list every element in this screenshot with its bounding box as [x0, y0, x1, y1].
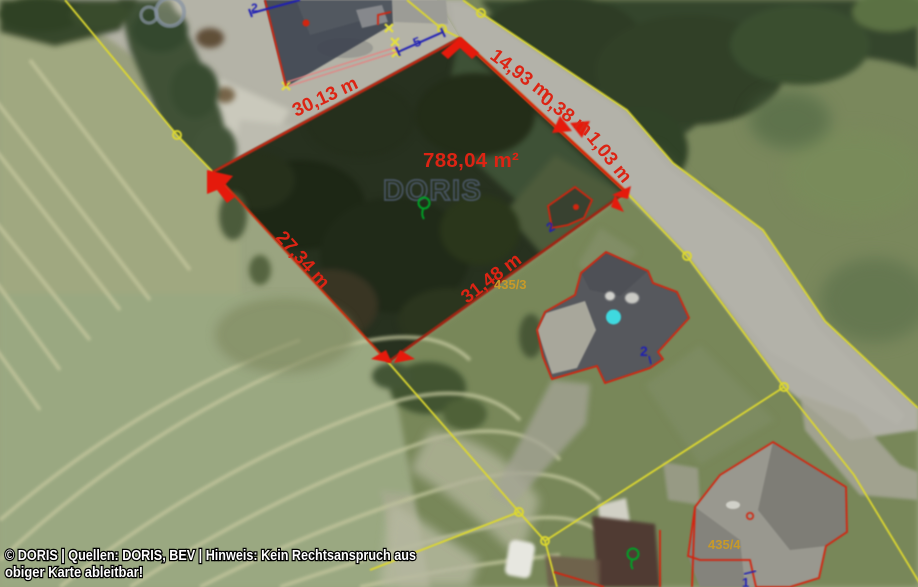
svg-text:DORIS: DORIS — [383, 175, 482, 207]
svg-text:2: 2 — [640, 343, 648, 359]
svg-text:435/4: 435/4 — [708, 537, 741, 552]
svg-text:1: 1 — [742, 575, 749, 587]
svg-text:2: 2 — [251, 1, 258, 15]
svg-text:788,04 m²: 788,04 m² — [423, 149, 519, 172]
svg-text:© DORIS | Quellen: DORIS, BEV: © DORIS | Quellen: DORIS, BEV | Hinweis:… — [5, 548, 416, 564]
svg-text:435/3: 435/3 — [494, 277, 527, 292]
svg-text:obiger Karte ableitbar!: obiger Karte ableitbar! — [5, 565, 143, 581]
